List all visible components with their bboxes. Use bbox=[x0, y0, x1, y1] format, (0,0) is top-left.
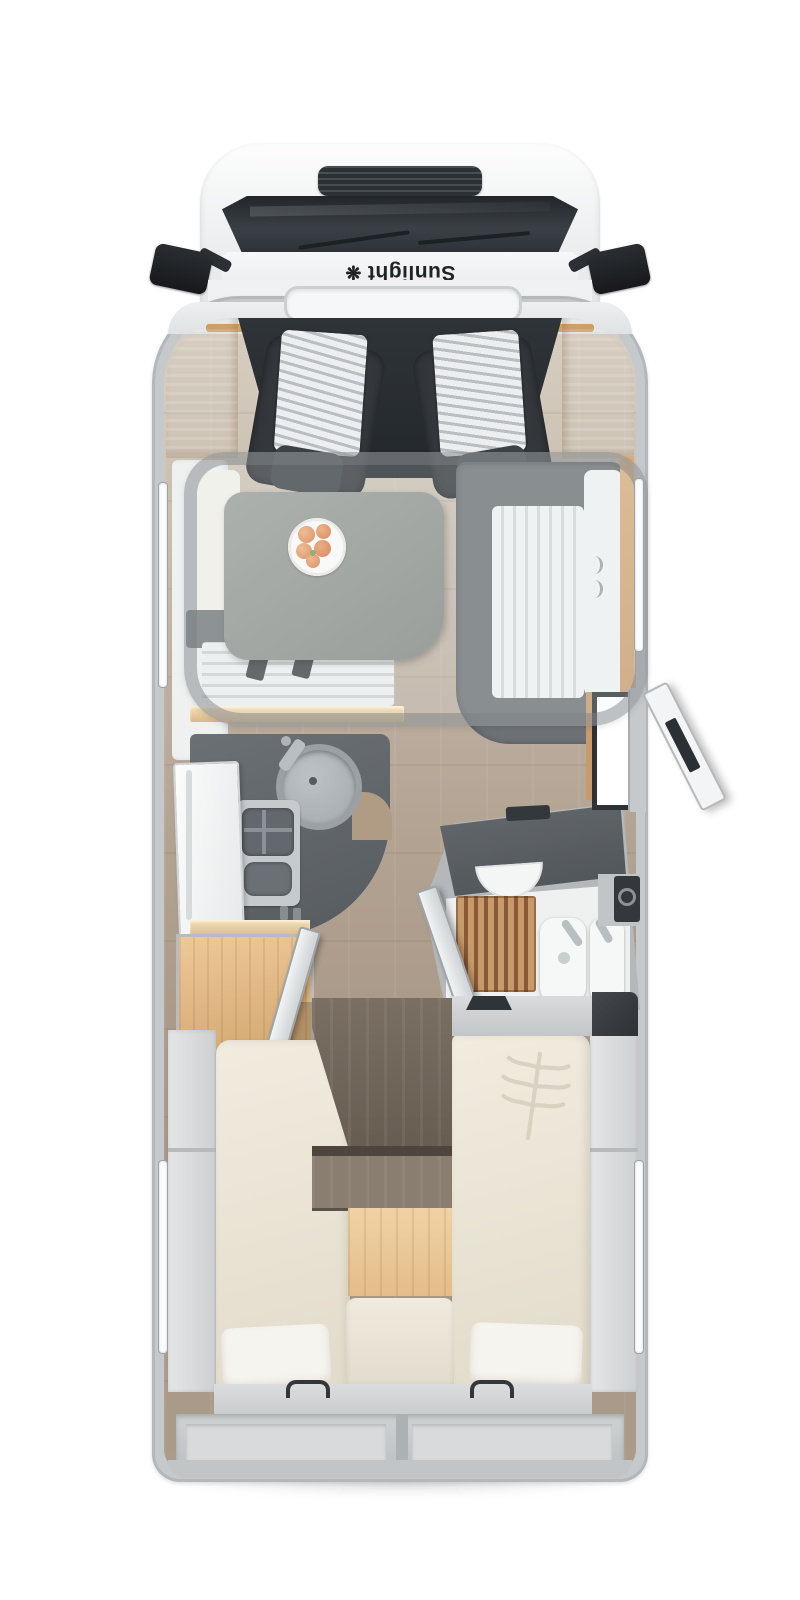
toilet-flush-button bbox=[558, 952, 570, 964]
side-window-left-front bbox=[158, 482, 168, 688]
sink-drain bbox=[309, 777, 317, 785]
hob-burner-large bbox=[242, 808, 294, 856]
driver-seat-backrest bbox=[271, 327, 370, 459]
pillow-right bbox=[469, 1322, 583, 1388]
counter-light-edge bbox=[190, 920, 310, 934]
rear-cabinet-handle bbox=[466, 996, 512, 1010]
flower-logo-icon: ❋ bbox=[345, 263, 361, 282]
grab-handle-right bbox=[470, 1380, 514, 1398]
side-window-right-rear bbox=[634, 1160, 644, 1354]
hob-knob bbox=[280, 906, 288, 920]
step-edge bbox=[312, 1146, 452, 1156]
side-window-left-rear bbox=[158, 1160, 168, 1354]
hood-vent-grille bbox=[318, 166, 482, 196]
garage-compartment-right bbox=[412, 1424, 612, 1460]
motorhome-floorplan: Sunlight ❋ bbox=[0, 0, 800, 1600]
center-step-cushion bbox=[346, 1298, 454, 1390]
entry-door-window bbox=[665, 717, 701, 772]
bedside-shelf-left bbox=[168, 1030, 216, 1392]
fridge bbox=[173, 761, 245, 939]
bedside-shelf-right bbox=[590, 1030, 638, 1392]
shelf-seam bbox=[590, 1148, 638, 1152]
fridge-handle bbox=[186, 770, 192, 920]
side-window-right-front bbox=[634, 478, 644, 652]
entry-door-open bbox=[642, 681, 727, 811]
bed-steps-lower bbox=[312, 1156, 452, 1211]
garage-compartment-left bbox=[186, 1424, 386, 1460]
cab-skylight bbox=[284, 286, 522, 322]
drop-down-bed-outline bbox=[184, 452, 648, 726]
hob-grate-bar bbox=[262, 810, 266, 854]
oak-step-platform bbox=[348, 1208, 452, 1296]
hob-burner-small bbox=[244, 862, 292, 896]
cassette-cap bbox=[618, 888, 636, 906]
hob-grate-bar bbox=[244, 828, 292, 832]
faucet-base bbox=[281, 736, 291, 746]
passenger-seat-backrest bbox=[430, 327, 529, 459]
bedspread-leaf-pattern bbox=[486, 1043, 583, 1150]
grab-handle-left bbox=[286, 1380, 330, 1398]
rear-bumper-lip bbox=[168, 1460, 632, 1478]
rear-corner-locker bbox=[592, 992, 638, 1036]
bed-foot-panel bbox=[214, 1384, 592, 1418]
shelf-seam bbox=[168, 1148, 216, 1152]
vanity-handle bbox=[506, 805, 551, 821]
